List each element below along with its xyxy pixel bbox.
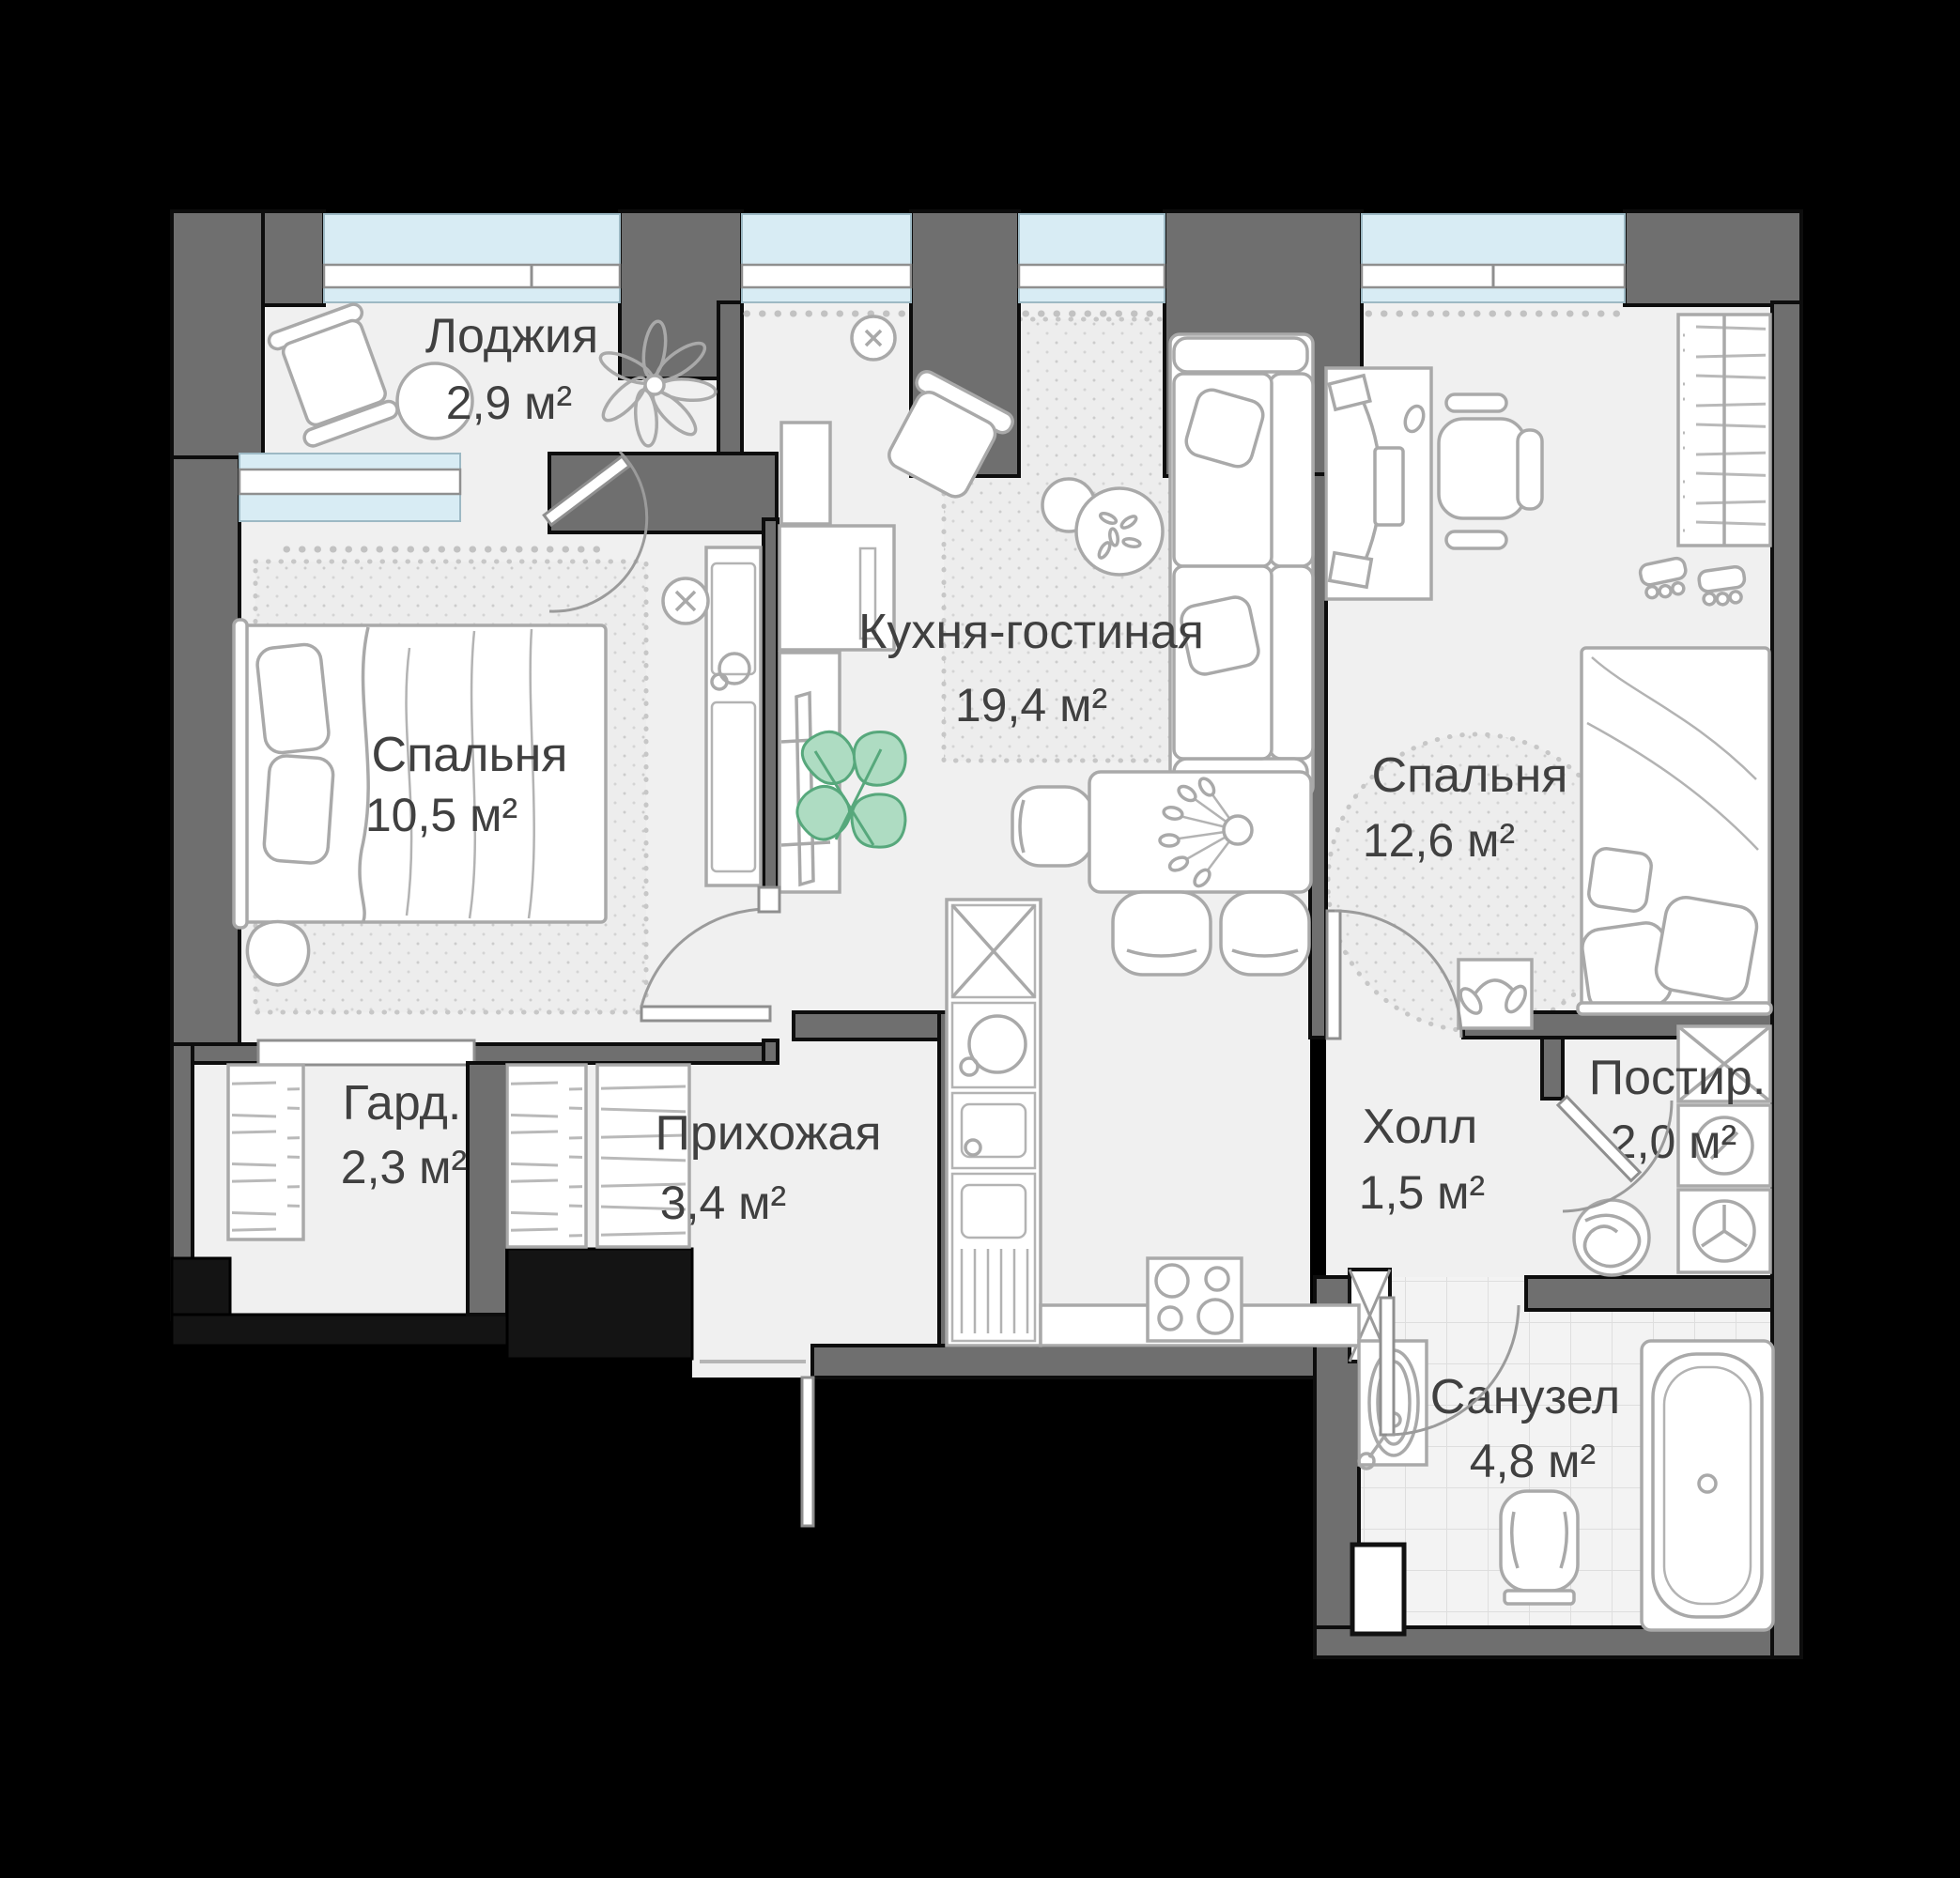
chair-icon [1221,892,1309,975]
hallway-area: 3,4 м² [660,1177,786,1229]
wall-bedroom1-east-b [764,1040,778,1063]
pillow-icon [1653,894,1760,1002]
wall-loggia-right [718,302,742,457]
wall-bottom [812,1346,1315,1378]
bedroom1-label: Спальня [372,728,568,782]
loggia-area: 2,9 м² [446,377,572,429]
wall-bottom-left [172,1315,507,1346]
kitchen-area: 19,4 м² [955,679,1107,731]
loggia-window [324,214,620,302]
floor-plan: Лоджия 2,9 м² Спальня 10,5 м² [0,0,1960,1878]
wall-hall-laundry-stub [1542,1038,1563,1099]
side-table-icon [852,316,895,360]
wall-bedroom1-left [172,457,239,1047]
hallway-label: Прихожая [656,1106,882,1161]
bathroom-label: Санузел [1430,1370,1621,1424]
wall-bathroom-north-b [1526,1277,1801,1310]
cabinet-icon [781,423,830,524]
wall-right [1772,302,1801,1657]
bathtub-icon [1642,1341,1773,1630]
wardrobe-sliding-door [258,1040,474,1065]
wall-hallway-block [507,1249,692,1359]
duct-box [1352,1545,1404,1634]
dresser-icon [706,547,761,885]
toilet-icon [1501,1491,1578,1604]
floor-plan-page: Лоджия 2,9 м² Спальня 10,5 м² [0,0,1960,1878]
loggia-label: Лоджия [425,309,598,363]
bedroom2-label: Спальня [1372,748,1568,803]
wardrobe-label: Гард. [343,1076,462,1131]
bedroom2-area: 12,6 м² [1363,814,1515,867]
kitchen-label: Кухня-гостиная [858,605,1204,659]
laundry-basket-icon [1574,1200,1649,1275]
shelf-unit-icon [228,1065,303,1239]
closet-icon [507,1065,586,1247]
bedroom1-area: 10,5 м² [365,789,517,841]
wardrobe2-icon [1678,315,1770,546]
kitchen-window-2 [1019,214,1165,302]
beanbag-icon [247,922,308,986]
single-bed-icon [1578,648,1771,1014]
sofa-icon [1170,334,1313,796]
wall-bedroom1-east-a [764,519,778,909]
desk-icon [1326,368,1431,599]
chair-icon [1012,787,1093,866]
chair-icon [1113,892,1211,975]
wall-hallway-north [794,1012,944,1039]
hall-label: Холл [1363,1100,1478,1154]
wall-top-right [1625,211,1801,305]
loggia-bedroom-window [239,454,460,521]
wall-loggia-left [172,211,263,457]
kitchen-window-1 [742,214,911,302]
wall-corner-block [172,1258,230,1319]
pillow-icon [1587,847,1653,913]
bedroom2-window [1362,214,1625,302]
hall-area: 1,5 м² [1359,1166,1485,1219]
wall-wardrobe-east [468,1063,507,1315]
stool-icon [663,578,708,623]
laundry-label: Постир. [1589,1051,1767,1105]
stove-icon [1148,1258,1242,1341]
wardrobe-area: 2,3 м² [341,1141,467,1193]
bathroom-area: 4,8 м² [1470,1435,1596,1487]
nightstand-headphones-icon [1457,960,1532,1028]
